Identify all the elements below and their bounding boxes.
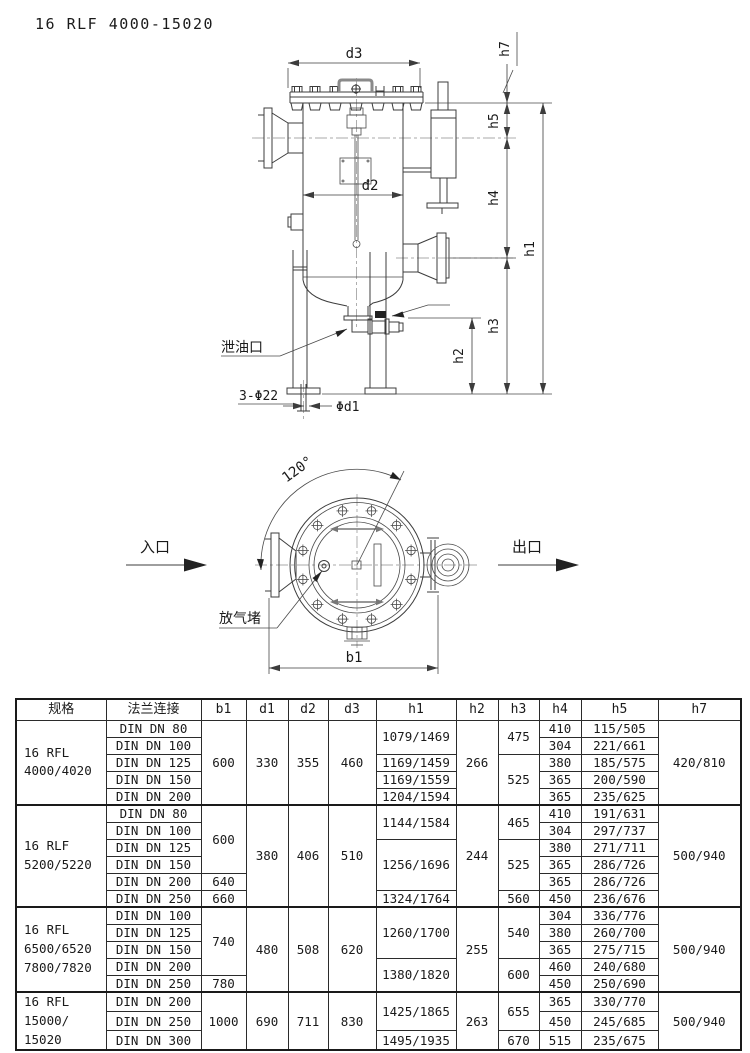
column-header-d3: d3 — [328, 699, 376, 720]
cell-h3: 465 — [498, 805, 539, 839]
flange-cell: DIN DN 125 — [106, 754, 201, 771]
d3-label: d3 — [346, 46, 363, 62]
table-row: 16 RFL15000/15020DIN DN 2001000690711830… — [16, 992, 741, 1011]
cell-h3: 475 — [498, 720, 539, 754]
table-row: DIN DN 2001380/1820600460240/680 — [16, 958, 741, 975]
column-header-规格: 规格 — [16, 699, 106, 720]
cell-h7: 420/810 — [658, 720, 741, 805]
cell-h5: 200/590 — [581, 771, 658, 788]
cell-h4: 380 — [539, 839, 581, 856]
cell-h4: 365 — [539, 873, 581, 890]
column-header-b1: b1 — [201, 699, 246, 720]
flange-cell: DIN DN 150 — [106, 941, 201, 958]
cell-h4: 450 — [539, 975, 581, 992]
drain-port-callout: 泄油口 — [221, 329, 347, 356]
cell-h4: 515 — [539, 1031, 581, 1050]
flange-cell: DIN DN 125 — [106, 839, 201, 856]
cell-h4: 365 — [539, 941, 581, 958]
cell-b1: 740 — [201, 907, 246, 975]
cell-h1: 1324/1764 — [376, 890, 456, 907]
centerlines — [252, 78, 516, 419]
cell-b1: 780 — [201, 975, 246, 992]
cell-h7: 500/940 — [658, 992, 741, 1050]
cell-h2: 263 — [456, 992, 498, 1050]
cell-h1: 1169/1459 — [376, 754, 456, 771]
outlet-flow: 出口 — [498, 538, 579, 572]
h3-label: h3 — [487, 318, 502, 334]
cell-h5: 245/685 — [581, 1011, 658, 1030]
cell-d1: 380 — [246, 805, 288, 907]
cell-h5: 330/770 — [581, 992, 658, 1011]
spec-table: 规格法兰连接b1d1d2d3h1h2h3h4h5h7 16 RFL4000/40… — [15, 698, 742, 1051]
cell-h1: 1079/1469 — [376, 720, 456, 754]
flange-cell: DIN DN 200 — [106, 958, 201, 975]
vent-plug-label: 放气堵 — [219, 611, 261, 627]
h1-label: h1 — [523, 241, 538, 257]
b1-dimension: b1 — [269, 595, 438, 674]
cell-h3: 560 — [498, 890, 539, 907]
cell-h5: 191/631 — [581, 805, 658, 822]
cell-h2: 266 — [456, 720, 498, 805]
cell-h3: 525 — [498, 839, 539, 890]
cell-h1: 1495/1935 — [376, 1031, 456, 1050]
cell-h5: 275/715 — [581, 941, 658, 958]
cell-h4: 380 — [539, 754, 581, 771]
catalog-page: 16 RLF 4000-15020 — [0, 0, 750, 1053]
h2-label: h2 — [452, 348, 467, 364]
cell-d2: 355 — [288, 720, 328, 805]
table-row: 16 RLF5200/5220DIN DN 806003804065101144… — [16, 805, 741, 822]
spec-table-header-row: 规格法兰连接b1d1d2d3h1h2h3h4h5h7 — [16, 699, 741, 720]
flange-cell: DIN DN 150 — [106, 771, 201, 788]
drain-valve — [344, 306, 403, 334]
cell-h5: 297/737 — [581, 822, 658, 839]
flange-cell: DIN DN 125 — [106, 924, 201, 941]
drain-port-label: 泄油口 — [221, 340, 263, 356]
flange-cell: DIN DN 80 — [106, 720, 201, 737]
outlet-label: 出口 — [512, 538, 542, 556]
cell-h5: 286/726 — [581, 873, 658, 890]
cell-b1: 600 — [201, 720, 246, 805]
d1-dimension: Φd1 — [283, 400, 359, 415]
cell-d2: 508 — [288, 907, 328, 992]
column-header-法兰连接: 法兰连接 — [106, 699, 201, 720]
h5-label: h5 — [487, 113, 502, 129]
column-header-h3: h3 — [498, 699, 539, 720]
table-row: DIN DN 3001495/1935670515235/675 — [16, 1031, 741, 1050]
column-header-h1: h1 — [376, 699, 456, 720]
column-header-d1: d1 — [246, 699, 288, 720]
spec-cell: 16 RFL15000/15020 — [16, 992, 106, 1050]
column-header-d2: d2 — [288, 699, 328, 720]
flange-cell: DIN DN 150 — [106, 856, 201, 873]
cell-d2: 406 — [288, 805, 328, 907]
cell-h3: 525 — [498, 754, 539, 805]
flange-cell: DIN DN 250 — [106, 890, 201, 907]
cell-b1: 1000 — [201, 992, 246, 1050]
b1-label: b1 — [346, 650, 363, 666]
cell-h5: 240/680 — [581, 958, 658, 975]
inlet-label: 入口 — [140, 538, 170, 556]
cell-h5: 185/575 — [581, 754, 658, 771]
cell-b1: 640 — [201, 873, 246, 890]
h4-label: h4 — [487, 190, 502, 206]
table-row: 16 RFL4000/4020DIN DN 806003303554601079… — [16, 720, 741, 737]
flange-cell: DIN DN 250 — [106, 1011, 201, 1030]
cell-h5: 115/505 — [581, 720, 658, 737]
flange-cell: DIN DN 250 — [106, 975, 201, 992]
table-row: 16 RFL6500/65207800/7820DIN DN 100740480… — [16, 907, 741, 924]
cell-d1: 690 — [246, 992, 288, 1050]
inlet-flow: 入口 — [126, 538, 207, 572]
cell-h4: 365 — [539, 771, 581, 788]
cell-h5: 235/625 — [581, 788, 658, 805]
cell-h5: 260/700 — [581, 924, 658, 941]
spec-cell: 16 RFL6500/65207800/7820 — [16, 907, 106, 992]
column-header-h7: h7 — [658, 699, 741, 720]
spec-cell: 16 RLF5200/5220 — [16, 805, 106, 907]
cell-h7: 500/940 — [658, 907, 741, 992]
cell-h3: 540 — [498, 907, 539, 958]
spec-table-body: 16 RFL4000/4020DIN DN 806003303554601079… — [16, 720, 741, 1050]
cell-h4: 410 — [539, 720, 581, 737]
flange-cell: DIN DN 200 — [106, 992, 201, 1011]
cell-h1: 1256/1696 — [376, 839, 456, 890]
column-header-h5: h5 — [581, 699, 658, 720]
cell-h7: 500/940 — [658, 805, 741, 907]
d3-dimension: d3 — [288, 46, 420, 88]
cell-h5: 236/676 — [581, 890, 658, 907]
cell-h2: 244 — [456, 805, 498, 907]
cell-h4: 410 — [539, 805, 581, 822]
vent-plug — [319, 561, 330, 572]
cell-h4: 365 — [539, 788, 581, 805]
flange-cell: DIN DN 200 — [106, 873, 201, 890]
table-row: DIN DN 1251169/1459525380185/575 — [16, 754, 741, 771]
cell-h4: 450 — [539, 890, 581, 907]
cell-h5: 286/726 — [581, 856, 658, 873]
spec-cell: 16 RFL4000/4020 — [16, 720, 106, 805]
flange-cell: DIN DN 200 — [106, 788, 201, 805]
cell-h1: 1380/1820 — [376, 958, 456, 992]
flange-cell: DIN DN 300 — [106, 1031, 201, 1050]
cell-h4: 304 — [539, 907, 581, 924]
cover-knob — [351, 84, 384, 96]
d2-dimension: d2 — [303, 178, 403, 195]
cell-d3: 830 — [328, 992, 376, 1050]
cell-h5: 235/675 — [581, 1031, 658, 1050]
cell-d1: 480 — [246, 907, 288, 992]
flange-cell: DIN DN 80 — [106, 805, 201, 822]
technical-drawing: 泄油口 3-Φ22 Φd1 d3 — [0, 0, 750, 695]
cell-d3: 460 — [328, 720, 376, 805]
cell-h1: 1169/1559 — [376, 771, 456, 788]
pressure-indicator — [403, 82, 458, 214]
cell-h4: 365 — [539, 856, 581, 873]
cell-h3: 655 — [498, 992, 539, 1031]
top-view-drawing: 放气堵 120° 入 — [126, 453, 579, 674]
flange-cell: DIN DN 100 — [106, 907, 201, 924]
cell-h1: 1144/1584 — [376, 805, 456, 839]
cell-h5: 250/690 — [581, 975, 658, 992]
flange-cell: DIN DN 100 — [106, 737, 201, 754]
table-row: DIN DN 2506601324/1764560450236/676 — [16, 890, 741, 907]
h7-label: h7 — [498, 41, 513, 57]
anchor-holes-label: 3-Φ22 — [239, 389, 278, 404]
cell-h1: 1204/1594 — [376, 788, 456, 805]
d1-label: Φd1 — [336, 400, 359, 415]
cell-b1: 660 — [201, 890, 246, 907]
cell-b1: 600 — [201, 805, 246, 873]
cell-h5: 271/711 — [581, 839, 658, 856]
cell-h2: 255 — [456, 907, 498, 992]
cell-h1: 1260/1700 — [376, 907, 456, 958]
d2-label: d2 — [362, 178, 379, 194]
cell-d2: 711 — [288, 992, 328, 1050]
cell-h4: 460 — [539, 958, 581, 975]
cell-d3: 620 — [328, 907, 376, 992]
table-row: DIN DN 2001204/1594365235/625 — [16, 788, 741, 805]
flange-cell: DIN DN 100 — [106, 822, 201, 839]
table-row: DIN DN 1501169/1559365200/590 — [16, 771, 741, 788]
cell-h5: 221/661 — [581, 737, 658, 754]
cell-h1: 1425/1865 — [376, 992, 456, 1031]
cell-h4: 304 — [539, 737, 581, 754]
table-row: DIN DN 1251256/1696525380271/711 — [16, 839, 741, 856]
cell-d3: 510 — [328, 805, 376, 907]
cell-d1: 330 — [246, 720, 288, 805]
cell-h5: 336/776 — [581, 907, 658, 924]
column-header-h4: h4 — [539, 699, 581, 720]
column-header-h2: h2 — [456, 699, 498, 720]
cell-h3: 670 — [498, 1031, 539, 1050]
cell-h4: 365 — [539, 992, 581, 1011]
cell-h3: 600 — [498, 958, 539, 992]
valve-leader — [392, 305, 450, 318]
side-view-drawing: 泄油口 3-Φ22 Φd1 d3 — [221, 32, 552, 419]
cell-h4: 304 — [539, 822, 581, 839]
cell-h4: 450 — [539, 1011, 581, 1030]
cell-h4: 380 — [539, 924, 581, 941]
